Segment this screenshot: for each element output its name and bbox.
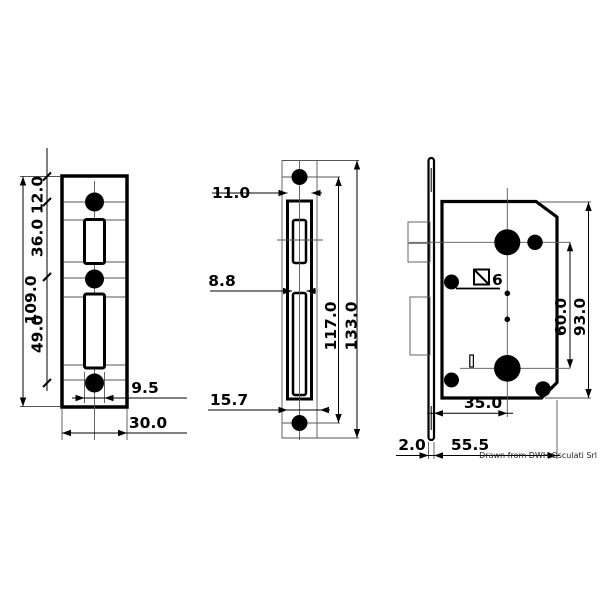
cylinder-hole (494, 355, 521, 382)
dim-label-backset: 35.0 (464, 394, 502, 412)
lock-body-view: 6 60.0 93.0 35.0 (396, 158, 592, 459)
lock-faceplate-edge (429, 158, 435, 440)
small-pin-hole-2 (505, 317, 511, 323)
dim-strike-chain: 12.0 36.0 49.0 (29, 148, 52, 391)
upper-left-hole (444, 275, 459, 290)
strike-plate-upper-slot (85, 220, 105, 264)
lock-dimension-drawing: 109.0 12.0 36.0 49.0 9.5 (0, 0, 600, 600)
dim-faceplate-total-length: 133.0 (343, 161, 361, 439)
dim-backset: 35.0 (427, 394, 513, 416)
dim-label-lower-spacing: 49.0 (29, 315, 47, 353)
spindle-hole (494, 229, 520, 255)
faceplate-top-screw-hole (292, 169, 308, 185)
dim-label-faceplate-thickness: 2.0 (398, 436, 426, 454)
technical-drawing-page: 109.0 12.0 36.0 49.0 9.5 (0, 0, 600, 600)
small-pin-hole-1 (505, 291, 511, 297)
dim-label-upper-spacing: 36.0 (29, 219, 47, 257)
dim-faceplate-width: 11.0 (212, 184, 322, 202)
dim-label-total-length: 133.0 (343, 301, 361, 350)
lower-right-hole (535, 381, 551, 397)
dim-label-hole-centers: 117.0 (322, 301, 340, 350)
dim-label-centers-spacing: 60.0 (552, 298, 570, 336)
dim-label-faceplate-width: 11.0 (212, 184, 250, 202)
dim-label-faceplate-slot-width: 8.8 (208, 272, 235, 290)
small-slot (470, 355, 474, 367)
strike-plate-bottom-hole (85, 374, 104, 393)
dim-strike-plate-width: 30.0 (62, 409, 187, 440)
dim-label-top-offset: 12.0 (29, 176, 47, 214)
strike-plate-top-hole (85, 193, 104, 212)
dim-label-slot-width: 9.5 (131, 379, 158, 397)
lower-left-hole (444, 373, 459, 388)
dim-label-body-height: 93.0 (571, 298, 589, 336)
dim-label-faceplate-bottom-offset: 15.7 (210, 391, 248, 409)
spindle-size-label: 6 (492, 271, 503, 289)
upper-right-hole (527, 235, 542, 250)
strike-plate-middle-hole (85, 270, 104, 289)
dead-bolt (410, 297, 430, 355)
faceplate-view: 11.0 8.8 15.7 117.0 (208, 160, 361, 440)
strike-plate-lower-slot (85, 294, 105, 368)
dim-label-plate-width: 30.0 (129, 414, 167, 432)
dim-faceplate-hole-centers: 117.0 (322, 177, 342, 423)
strike-plate-view: 109.0 12.0 36.0 49.0 9.5 (20, 148, 187, 440)
drawing-credit: Drawn from DWH Osculati Srl (479, 451, 597, 460)
dim-body-height: 93.0 (571, 202, 592, 398)
faceplate-bottom-screw-hole (292, 415, 308, 431)
